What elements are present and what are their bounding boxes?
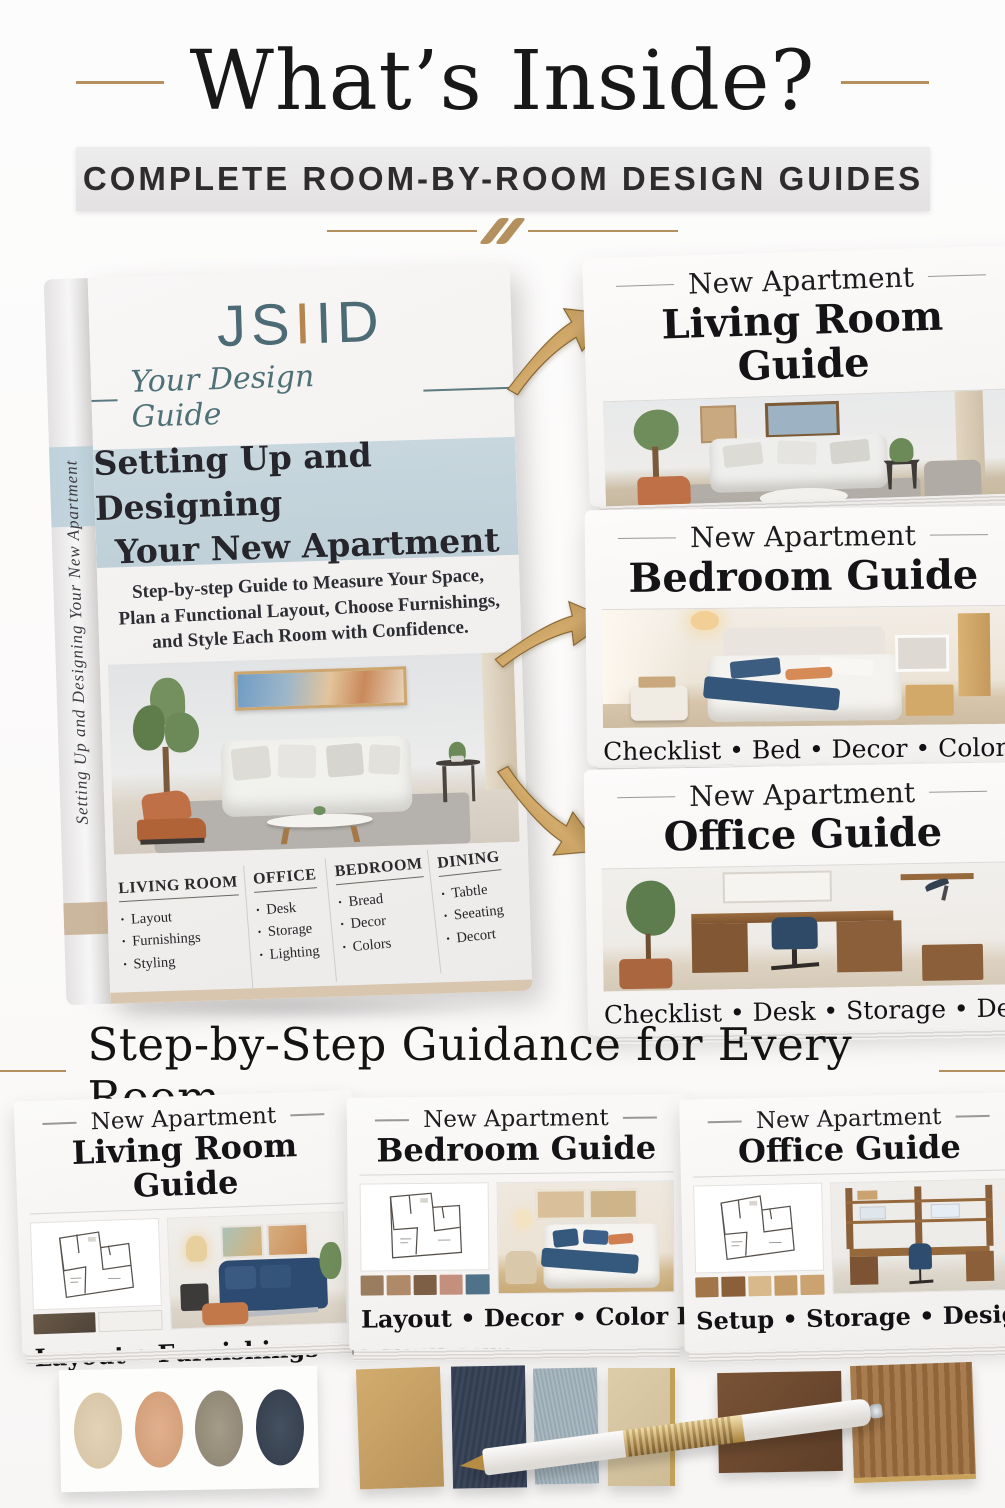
wood-swatch [722, 1277, 746, 1298]
logo-id: ID [315, 289, 385, 356]
wall-art [536, 1189, 586, 1220]
booklet-title: Bedroom Guide [359, 1130, 673, 1175]
paint-oval-navy [255, 1389, 304, 1466]
desk-cabinet-left [691, 923, 748, 973]
bed-illustration [543, 1224, 659, 1289]
leather-pouf [619, 959, 672, 989]
color-swatch [440, 1275, 464, 1295]
section2-dash-left [0, 1070, 66, 1073]
plant-vase [889, 437, 914, 462]
eyebrow-line-right [290, 1113, 324, 1116]
eyebrow-line-right [928, 274, 986, 277]
eyebrow-line-left [618, 537, 676, 539]
guide-card-bedroom: New Apartment Bedroom Guide Checklist • … [585, 506, 1005, 767]
office-booklet-photo [830, 1179, 1005, 1295]
column-header: OFFICE [252, 866, 317, 893]
table-lamp [515, 1209, 531, 1229]
pen-button [869, 1403, 883, 1418]
column-bedroom: BEDROOM Bread Decor Colors [325, 848, 441, 981]
cover-living-room-photo [108, 652, 520, 855]
office-chair [906, 1243, 935, 1290]
wall-art [220, 1225, 264, 1259]
divider-line-left [327, 230, 477, 233]
eyebrow-line-left [375, 1119, 409, 1121]
floor-plan-sketch [360, 1182, 490, 1271]
leather-chair [637, 476, 690, 507]
color-swatch-strip [361, 1274, 490, 1295]
thumbnail-swatch [33, 1313, 96, 1335]
logo-js: JS [216, 292, 296, 359]
eyebrow-line-right [623, 1117, 657, 1119]
guide-card-eyebrow: New Apartment [690, 519, 916, 554]
floor-plan-sketch [30, 1218, 162, 1310]
eyebrow-line-right [955, 1115, 989, 1117]
guide-card-title: Office Guide [601, 809, 1005, 860]
desk-hutch-right [837, 920, 903, 972]
book-title-band: Setting Up and Designing Your New Apartm… [93, 437, 518, 568]
color-swatch [387, 1275, 411, 1295]
divider-emblem-icon [489, 218, 516, 244]
guide-card-living-room: New Apartment Living Room Guide [582, 245, 1005, 507]
potted-plant [627, 409, 686, 485]
leather-chair [136, 791, 207, 843]
thumbnail-swatch [98, 1310, 163, 1332]
plant [319, 1242, 341, 1280]
booklet-tags: Layout • Decor • Color Palette [361, 1293, 675, 1336]
living-room-booklet-photo [167, 1212, 348, 1330]
office-chair [764, 917, 826, 979]
sofa-illustration [709, 434, 888, 493]
book-topic-columns: LIVING ROOM Layout Furnishings Styling O… [112, 850, 526, 987]
title-dash-left [76, 81, 164, 84]
living-room-guide-photo [603, 389, 1005, 515]
shelf-unit [845, 1184, 994, 1249]
pinboard [723, 870, 833, 903]
floor-plan-sketch [693, 1183, 824, 1274]
page-title: What’s Inside? [190, 41, 816, 123]
paint-oval-olive [195, 1390, 244, 1467]
color-swatch [361, 1276, 385, 1296]
page-title-row: What’s Inside? [0, 28, 1005, 136]
window [764, 401, 840, 438]
wall-art [234, 667, 408, 711]
accent-chair [505, 1251, 537, 1284]
paint-oval-cream [74, 1392, 123, 1469]
jsiid-logo: JSIID [88, 289, 512, 360]
leather-ottoman [202, 1302, 248, 1326]
booklet-tags: Setup • Storage • Design Tips [696, 1291, 1005, 1338]
booklet-bedroom: New Apartment Bedroom Guide [347, 1094, 688, 1350]
paint-oval-peach [134, 1391, 183, 1468]
color-swatch [413, 1275, 437, 1295]
title-dash-right [841, 81, 929, 84]
eyebrow-line-right [929, 791, 987, 794]
side-cart [922, 943, 983, 981]
guide-card-title: Bedroom Guide [601, 553, 1005, 601]
fabric-swatch-gold [356, 1367, 444, 1490]
office-guide-photo [601, 861, 1005, 991]
booklet-living-room: New Apartment Living Room Guide [14, 1090, 361, 1354]
bedroom-guide-photo [602, 605, 1005, 728]
tagline-line-right [423, 387, 513, 391]
column-header: BEDROOM [334, 855, 424, 885]
wood-cube [906, 684, 955, 715]
headboard [723, 626, 885, 658]
paint-sample-card [59, 1366, 319, 1492]
side-cabinet [966, 1250, 995, 1281]
logo-i-gold: I [293, 291, 316, 357]
booklet-title: Living Room Guide [27, 1127, 344, 1215]
gold-divider [0, 214, 1005, 248]
wood-swatch [748, 1276, 772, 1297]
column-living-room: LIVING ROOM Layout Furnishings Styling [110, 867, 253, 999]
wood-swatch-strip [695, 1275, 824, 1298]
floor-lamp [186, 1235, 208, 1262]
wood-panel [957, 613, 990, 696]
book-cover: JSIID Your Design Guide Setting Up and D… [88, 265, 533, 1004]
booklet-title: Office Guide [692, 1128, 1005, 1177]
armchair [924, 460, 982, 500]
side-table [436, 759, 482, 802]
wood-swatch [774, 1275, 798, 1296]
desk-lamp [925, 880, 966, 900]
book-title-line1: Setting Up and Designing [93, 429, 518, 531]
wall-art [589, 1189, 639, 1220]
pen-tip [459, 1454, 485, 1473]
pendant-lamp [691, 611, 719, 630]
subtitle-banner-text: COMPLETE ROOM-BY-ROOM DESIGN GUIDES [83, 160, 923, 198]
infographic-page: What’s Inside? COMPLETE ROOM-BY-ROOM DES… [0, 0, 1005, 1508]
section2-dash-right [939, 1070, 1005, 1073]
booklet-office: New Apartment Office Guide [679, 1092, 1005, 1352]
guide-card-tags: Checklist • Bed • Decor • Colors [603, 724, 1005, 768]
column-header: LIVING ROOM [118, 873, 239, 902]
guide-card-title: Living Room Guide [600, 293, 1005, 394]
eyebrow-line-right [930, 534, 988, 536]
guide-card-office: New Apartment Office Guide [584, 762, 1005, 1036]
book-subtitle: Step-by-step Guide to Measure Your Space… [97, 561, 522, 658]
guide-card-eyebrow: New Apartment [689, 776, 915, 813]
divider-line-right [528, 230, 678, 233]
sofa-illustration [220, 735, 413, 817]
subtitle-banner: COMPLETE ROOM-BY-ROOM DESIGN GUIDES [76, 147, 930, 211]
book-mockup: Setting Up and Designing Your New Apartm… [44, 265, 533, 1005]
book-tagline: Your Design Guide [130, 356, 410, 435]
shelf-frame [895, 635, 950, 672]
wall-art [266, 1223, 310, 1257]
wood-swatch [801, 1275, 825, 1296]
color-swatch [466, 1274, 490, 1294]
bedroom-booklet-photo [496, 1181, 674, 1295]
wood-swatch [695, 1277, 719, 1298]
bed-illustration [707, 654, 902, 722]
eyebrow-line-left [708, 1121, 742, 1123]
book-tagline-row: Your Design Guide [90, 353, 514, 436]
eyebrow-line-left [617, 796, 675, 799]
coffee-table [267, 812, 373, 844]
column-item: Lighting [258, 940, 327, 967]
tagline-line-left [92, 400, 118, 402]
desk-cabinet [850, 1256, 879, 1285]
column-office: OFFICE Desk Storage Lighting [243, 859, 337, 989]
nightstand-left [631, 685, 688, 721]
books [639, 677, 675, 688]
eyebrow-line-left [616, 284, 674, 287]
eyebrow-line-left [43, 1122, 77, 1125]
